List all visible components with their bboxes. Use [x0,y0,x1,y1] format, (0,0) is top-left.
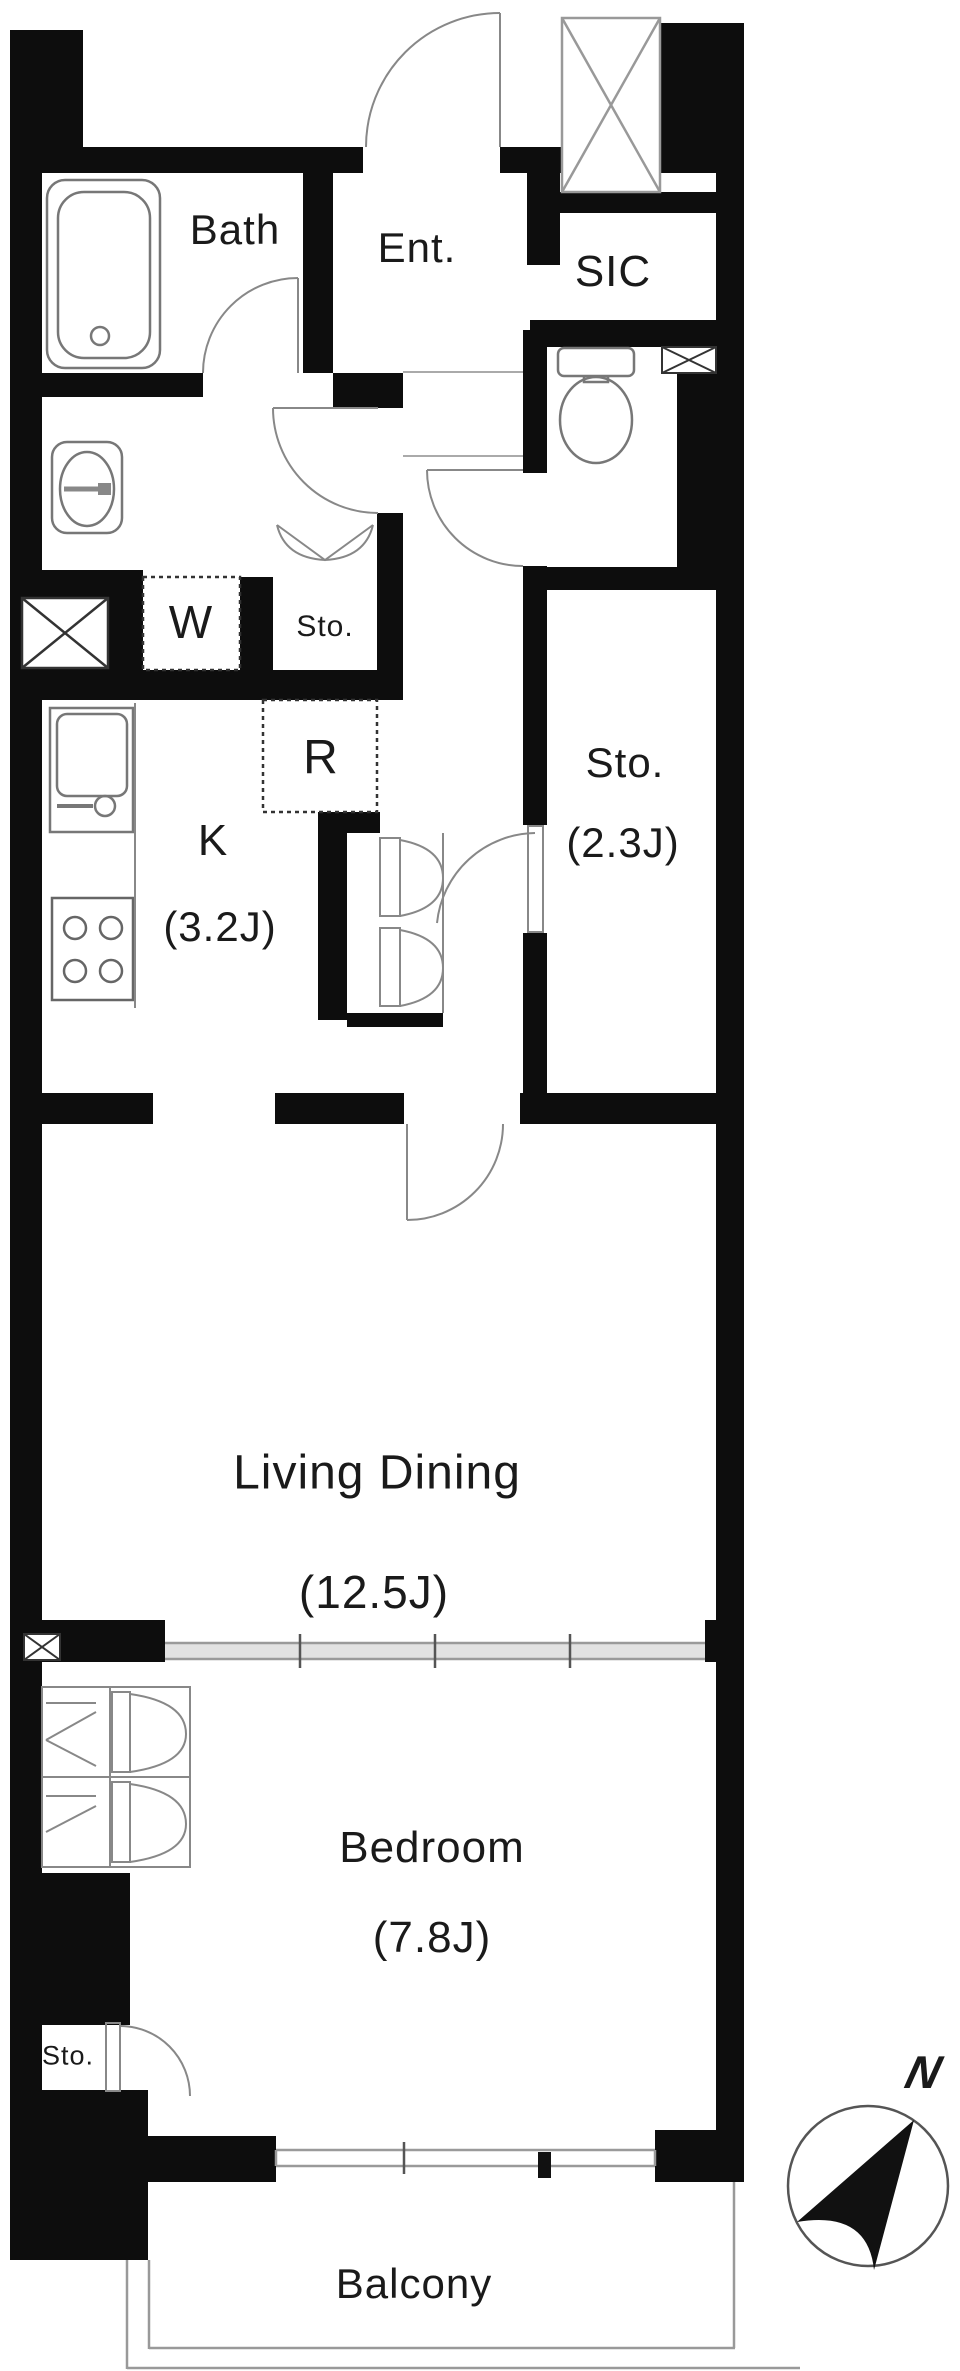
balcony-label: Balcony [336,2260,492,2308]
main-storage-size: (2.3J) [566,819,679,867]
bathtub-icon [47,180,160,368]
bifold-door-icon [277,525,373,560]
toilet-icon [558,348,634,463]
door-swing [106,13,543,2096]
bedroom-label: Bedroom [339,1823,525,1873]
closet-bifold-icon [380,833,443,1013]
kitchen-label: K [198,816,228,866]
duct-box-icon [662,347,716,373]
fridge-spot-label: R [303,731,339,786]
bedroom-storage-label: Sto. [42,2041,94,2072]
duct-box-icon [24,1634,60,1660]
shoe-closet-label: SIC [575,247,651,297]
entrance-step-line [403,372,523,456]
living-dining-label: Living Dining [233,1446,521,1501]
balcony-window [276,2142,655,2178]
pipe-shaft-icon [562,18,660,192]
washbasin-icon [52,442,122,533]
sliding-partition [165,1634,705,1668]
main-storage-label: Sto. [586,739,665,787]
bath-label: Bath [190,206,280,254]
bedroom-size: (7.8J) [373,1913,491,1963]
living-dining-size: (12.5J) [299,1565,449,1619]
hall-storage-label: Sto. [296,610,353,644]
kitchen-size: (3.2J) [163,903,276,951]
stove-icon [52,898,133,1000]
compass-icon [788,2106,948,2270]
washer-spot-label: W [169,595,213,649]
entrance-label: Ent. [378,224,457,272]
kitchen-sink-icon [50,708,133,832]
shaft-box-icon [22,598,108,668]
bedroom-closet-icon [42,1687,190,1867]
floor-plan: Bath Ent. SIC W Sto. R K (3.2J) Sto. (2.… [0,0,960,2371]
